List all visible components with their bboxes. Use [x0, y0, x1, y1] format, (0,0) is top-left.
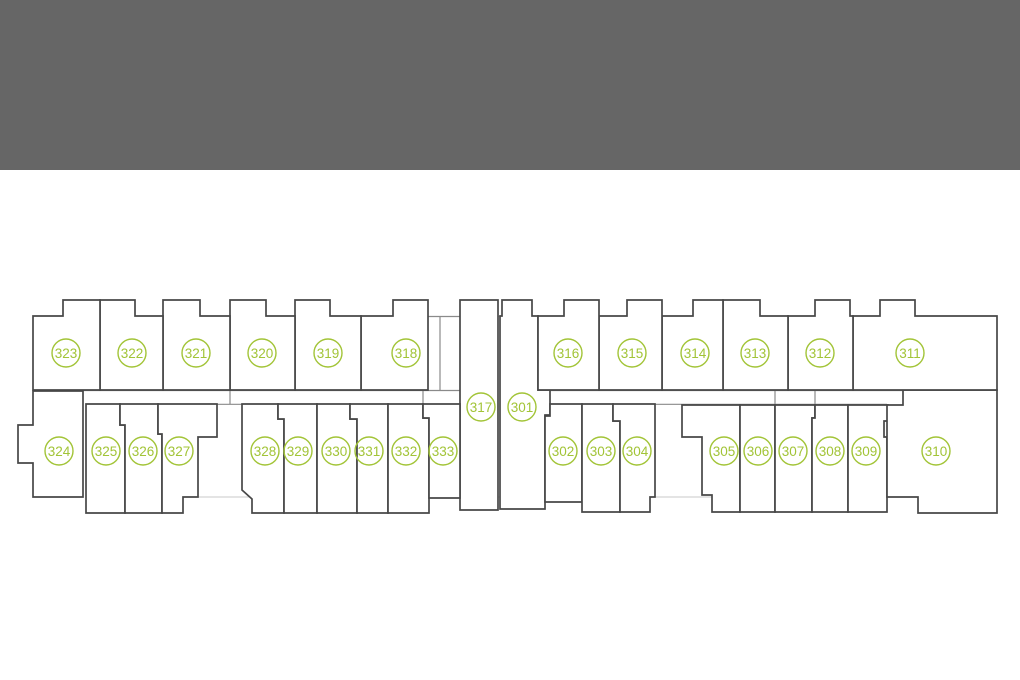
unit-number-318: 318	[395, 346, 418, 361]
unit-312[interactable]: 312	[788, 300, 853, 390]
unit-304[interactable]: 304	[613, 404, 655, 512]
unit-number-315: 315	[621, 346, 644, 361]
unit-number-310: 310	[925, 444, 948, 459]
unit-number-329: 329	[287, 444, 310, 459]
unit-318[interactable]: 318	[361, 300, 428, 390]
unit-number-303: 303	[590, 444, 613, 459]
unit-number-319: 319	[317, 346, 340, 361]
unit-308[interactable]: 308	[812, 405, 848, 512]
unit-number-330: 330	[325, 444, 348, 459]
unit-313[interactable]: 313	[723, 300, 788, 390]
unit-330[interactable]: 330	[317, 404, 357, 513]
unit-number-331: 331	[358, 444, 381, 459]
unit-321[interactable]: 321	[163, 300, 230, 390]
unit-314[interactable]: 314	[662, 300, 723, 390]
unit-number-317: 317	[470, 400, 493, 415]
unit-number-307: 307	[782, 444, 805, 459]
unit-323[interactable]: 323	[33, 300, 100, 390]
unit-number-312: 312	[809, 346, 832, 361]
unit-number-314: 314	[684, 346, 707, 361]
unit-number-320: 320	[251, 346, 274, 361]
unit-326[interactable]: 326	[120, 404, 162, 513]
unit-number-322: 322	[121, 346, 144, 361]
unit-306[interactable]: 306	[740, 405, 775, 512]
unit-310[interactable]: 310	[887, 390, 997, 513]
unit-309[interactable]: 309	[848, 405, 888, 512]
unit-number-309: 309	[855, 444, 878, 459]
unit-302[interactable]: 302	[545, 404, 582, 502]
unit-307[interactable]: 307	[775, 405, 815, 512]
floorplan-page: 3013023033043053063073083093103113123133…	[0, 0, 1020, 680]
unit-320[interactable]: 320	[230, 300, 295, 390]
unit-319[interactable]: 319	[295, 300, 361, 390]
unit-number-316: 316	[557, 346, 580, 361]
unit-316[interactable]: 316	[538, 300, 599, 390]
unit-322[interactable]: 322	[100, 300, 163, 390]
unit-number-313: 313	[744, 346, 767, 361]
unit-number-311: 311	[899, 346, 921, 361]
unit-332[interactable]: 332	[388, 404, 429, 513]
unit-305[interactable]: 305	[682, 405, 740, 512]
unit-number-305: 305	[713, 444, 736, 459]
unit-number-328: 328	[254, 444, 277, 459]
unit-number-301: 301	[511, 400, 534, 415]
unit-number-325: 325	[95, 444, 118, 459]
unit-333[interactable]: 333	[423, 404, 460, 498]
unit-number-333: 333	[432, 444, 455, 459]
unit-311[interactable]: 311	[853, 300, 997, 390]
unit-number-324: 324	[48, 444, 71, 459]
unit-outline-311[interactable]	[853, 300, 997, 390]
unit-328[interactable]: 328	[242, 404, 284, 513]
unit-number-308: 308	[819, 444, 842, 459]
unit-315[interactable]: 315	[599, 300, 662, 390]
unit-number-332: 332	[395, 444, 418, 459]
unit-number-327: 327	[168, 444, 191, 459]
unit-329[interactable]: 329	[278, 404, 317, 513]
floorplan-svg: 3013023033043053063073083093103113123133…	[0, 0, 1020, 680]
unit-317[interactable]: 317	[460, 300, 498, 510]
unit-number-323: 323	[55, 346, 78, 361]
unit-number-326: 326	[132, 444, 155, 459]
unit-324[interactable]: 324	[18, 391, 83, 497]
unit-number-306: 306	[747, 444, 770, 459]
unit-number-321: 321	[185, 346, 208, 361]
unit-number-302: 302	[552, 444, 575, 459]
unit-number-304: 304	[626, 444, 649, 459]
